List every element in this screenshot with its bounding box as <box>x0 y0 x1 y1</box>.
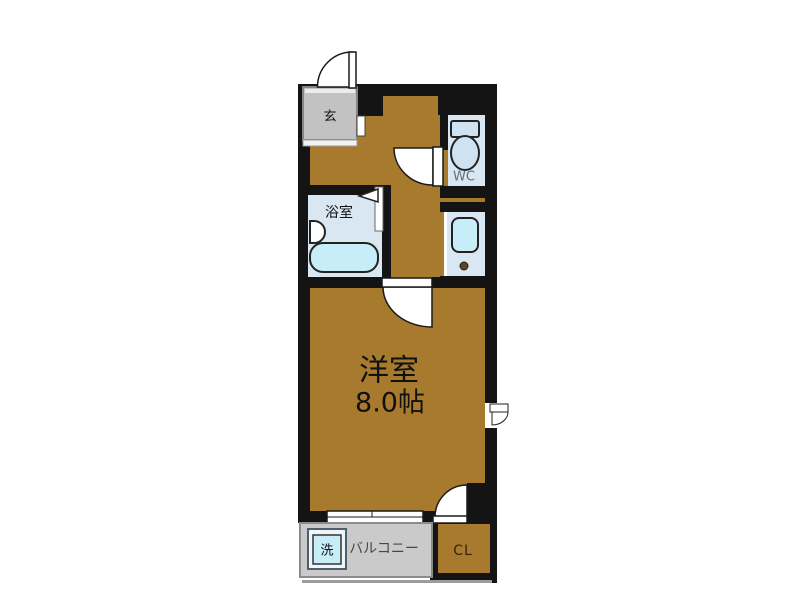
main-room-area-label: 8.0帖 <box>355 388 425 419</box>
bathtub-icon <box>310 243 378 272</box>
closet-door-leaf-icon <box>433 516 467 523</box>
hatch-door-leaf-icon <box>490 404 508 412</box>
wall-wc-left <box>440 112 448 150</box>
wall-genkan-side <box>357 87 383 116</box>
closet-label: CL <box>453 543 473 559</box>
wall-wc-bottom <box>440 186 497 198</box>
floor-plan-page: 玄 WC 浴室 洋室 8.0帖 バルコニー 洗 CL <box>0 0 800 600</box>
wall-kitchenette-top <box>440 202 497 212</box>
wall-left <box>298 84 310 523</box>
genkan-label: 玄 <box>323 110 336 125</box>
drain-dot-icon <box>460 262 468 270</box>
washer-label: 洗 <box>320 544 333 559</box>
wall-right <box>485 84 497 523</box>
wall-kitchenette-bottom <box>440 276 497 288</box>
shoe-cabinet-icon <box>357 116 365 136</box>
wall-door-stub <box>432 277 448 288</box>
wc-label: WC <box>453 170 475 185</box>
entry-door-leaf-icon <box>349 52 356 88</box>
wc-door-leaf-icon <box>433 147 443 186</box>
toilet-tank-icon <box>451 121 479 137</box>
main-room-label: 洋室 <box>359 354 419 389</box>
genkan-top-highlight <box>305 89 355 93</box>
balcony-label: バルコニー <box>349 541 419 557</box>
bathroom-label: 浴室 <box>325 204 353 221</box>
floor-plan: 玄 WC 浴室 洋室 8.0帖 バルコニー 洗 CL <box>0 0 800 600</box>
balcony-shadow-line <box>302 580 492 583</box>
hatch-door-arc-icon <box>492 412 508 425</box>
genkan-step <box>303 140 357 146</box>
main-room-door-leaf-icon <box>382 278 432 287</box>
washbasin-icon <box>310 221 325 243</box>
kitchenette-edge <box>444 212 447 276</box>
entry-door-arc-icon <box>318 52 353 87</box>
toilet-bowl-icon <box>451 136 479 170</box>
wall-bathroom-bottom <box>298 277 383 288</box>
sink-basin-icon <box>452 218 478 252</box>
